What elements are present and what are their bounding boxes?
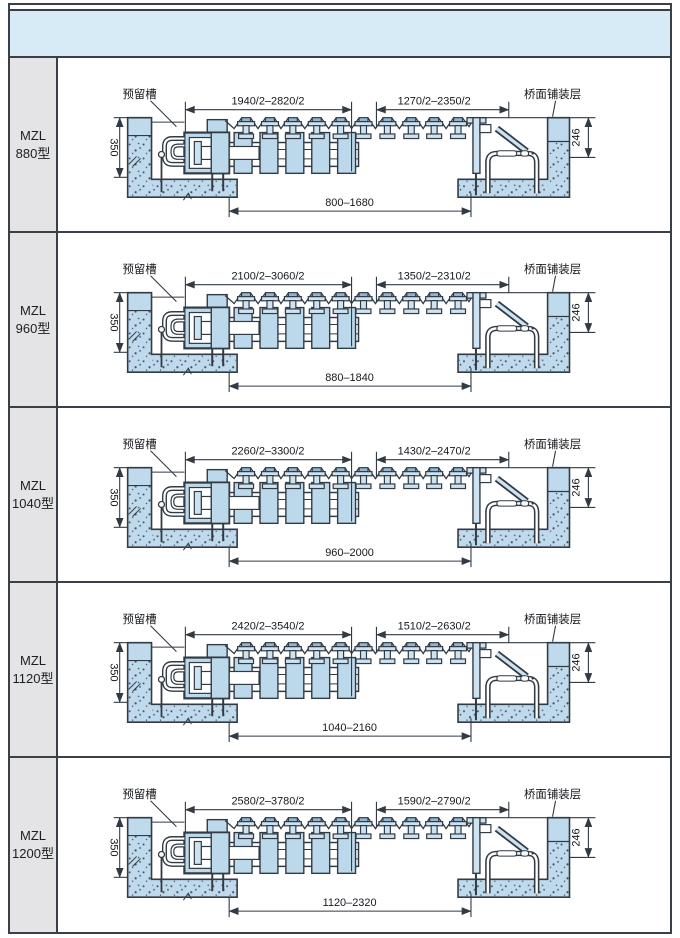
dim-pavement-thickness: 246: [570, 303, 582, 321]
joint-cross-section-diagram: 1940/2–2820/2 1270/2–2350/2 800–1680: [58, 58, 670, 231]
label-pavement-layer: 桥面铺装层: [524, 88, 581, 101]
edge-beam-cap: [207, 645, 227, 658]
bar-stem: [201, 321, 259, 334]
diagram-cell: 2580/2–3780/2 1590/2–2790/2 1120–2320: [58, 758, 670, 932]
bar-flange: [194, 492, 201, 515]
dim-pavement-thickness: 246: [570, 478, 582, 496]
dim-top-left: 2420/2–3540/2: [231, 621, 304, 633]
joint-type-table: MZL 880型: [8, 3, 672, 934]
leader-pavement-layer: 桥面铺装层: [524, 788, 581, 817]
label-reserved-groove: 预留槽: [122, 613, 156, 626]
leader-pavement-layer: 桥面铺装层: [524, 438, 581, 467]
leader-pavement-layer: 桥面铺装层: [524, 88, 581, 117]
table-row: MZL 1120型: [10, 583, 670, 758]
dim-top-right: 1510/2–2630/2: [398, 621, 471, 633]
dim-wall-height: 350: [108, 313, 120, 331]
model-label-cell: MZL 1040型: [10, 408, 58, 581]
model-label-cell: MZL 1120型: [10, 583, 58, 756]
dim-wall-height: 350: [108, 138, 120, 156]
model-number: 1200型: [12, 845, 54, 863]
model-prefix: MZL: [20, 302, 46, 320]
label-pavement-layer: 桥面铺装层: [524, 263, 581, 276]
bar-stem: [201, 671, 259, 684]
bracket: [480, 125, 491, 133]
table-row: MZL 1200型: [10, 758, 670, 932]
dim-top-right: 1590/2–2790/2: [398, 796, 471, 808]
diagram-cell: 2260/2–3300/2 1430/2–2470/2 960–2000: [58, 408, 670, 581]
model-label-cell: MZL 880型: [10, 58, 58, 231]
edge-plate: [473, 293, 480, 349]
diagram-cell: 2420/2–3540/2 1510/2–2630/2 1040–2160: [58, 583, 670, 756]
bracket: [480, 650, 491, 658]
bar-flange: [194, 667, 201, 690]
dim-bottom: 960–2000: [325, 547, 374, 559]
joint-cross-section-diagram: 2100/2–3060/2 1350/2–2310/2 880–1840: [58, 233, 670, 406]
model-label-cell: MZL 1200型: [10, 758, 58, 932]
label-pavement-layer: 桥面铺装层: [524, 613, 581, 626]
table-row: MZL 960型: [10, 233, 670, 408]
joint-cross-section-diagram: 2580/2–3780/2 1590/2–2790/2 1120–2320: [58, 758, 670, 931]
leader-pavement-layer: 桥面铺装层: [524, 613, 581, 642]
edge-beam-cap: [207, 470, 227, 483]
dim-top-right: 1270/2–2350/2: [398, 96, 471, 108]
edge-plate: [473, 468, 480, 524]
model-number: 1040型: [12, 495, 54, 513]
label-reserved-groove: 预留槽: [122, 263, 156, 276]
dim-bottom: 1120–2320: [323, 897, 377, 909]
label-reserved-groove: 预留槽: [122, 788, 156, 801]
dim-top-left: 1940/2–2820/2: [231, 96, 304, 108]
table-row: MZL 880型: [10, 58, 670, 233]
edge-plate: [473, 643, 480, 699]
model-number: 880型: [16, 145, 51, 163]
table-row: MZL 1040型: [10, 408, 670, 583]
edge-beam-cap: [207, 295, 227, 308]
dim-wall-height: 350: [108, 663, 120, 681]
model-prefix: MZL: [20, 827, 46, 845]
dim-pavement-thickness: 246: [570, 128, 582, 146]
label-reserved-groove: 预留槽: [122, 438, 156, 451]
dim-top-left: 2260/2–3300/2: [231, 446, 304, 458]
model-prefix: MZL: [20, 477, 46, 495]
bar-stem: [201, 146, 259, 159]
bar-stem: [201, 496, 259, 509]
dim-wall-height: 350: [108, 838, 120, 856]
model-number: 960型: [16, 320, 51, 338]
dim-pavement-thickness: 246: [570, 653, 582, 671]
dim-wall-height: 350: [108, 488, 120, 506]
dim-top-left: 2580/2–3780/2: [231, 796, 304, 808]
edge-beam-cap: [207, 820, 227, 833]
diagram-cell: 2100/2–3060/2 1350/2–2310/2 880–1840: [58, 233, 670, 406]
label-pavement-layer: 桥面铺装层: [524, 788, 581, 801]
dim-top-right: 1430/2–2470/2: [398, 446, 471, 458]
model-label-cell: MZL 960型: [10, 233, 58, 406]
dim-top-right: 1350/2–2310/2: [398, 271, 471, 283]
table-body: MZL 880型: [10, 58, 670, 932]
model-prefix: MZL: [20, 127, 46, 145]
bar-flange: [194, 317, 201, 340]
label-reserved-groove: 预留槽: [122, 88, 156, 101]
dim-top-left: 2100/2–3060/2: [231, 271, 304, 283]
edge-plate: [473, 818, 480, 874]
diagram-cell: 1940/2–2820/2 1270/2–2350/2 800–1680: [58, 58, 670, 231]
bar-flange: [194, 142, 201, 165]
header-band: [10, 9, 670, 58]
dim-bottom: 800–1680: [325, 197, 374, 209]
edge-beam-cap: [207, 120, 227, 133]
bracket: [480, 825, 491, 833]
dim-bottom: 1040–2160: [322, 722, 377, 734]
bracket: [480, 475, 491, 483]
leader-pavement-layer: 桥面铺装层: [524, 263, 581, 292]
dim-pavement-thickness: 246: [570, 828, 582, 846]
model-number: 1120型: [13, 670, 54, 688]
bar-flange: [194, 842, 201, 865]
bar-stem: [201, 846, 259, 859]
dim-bottom: 880–1840: [325, 372, 374, 384]
joint-cross-section-diagram: 2420/2–3540/2 1510/2–2630/2 1040–2160: [58, 583, 670, 756]
model-prefix: MZL: [20, 652, 46, 670]
joint-cross-section-diagram: 2260/2–3300/2 1430/2–2470/2 960–2000: [58, 408, 670, 581]
edge-plate: [473, 118, 480, 174]
label-pavement-layer: 桥面铺装层: [524, 438, 581, 451]
bracket: [480, 300, 491, 308]
